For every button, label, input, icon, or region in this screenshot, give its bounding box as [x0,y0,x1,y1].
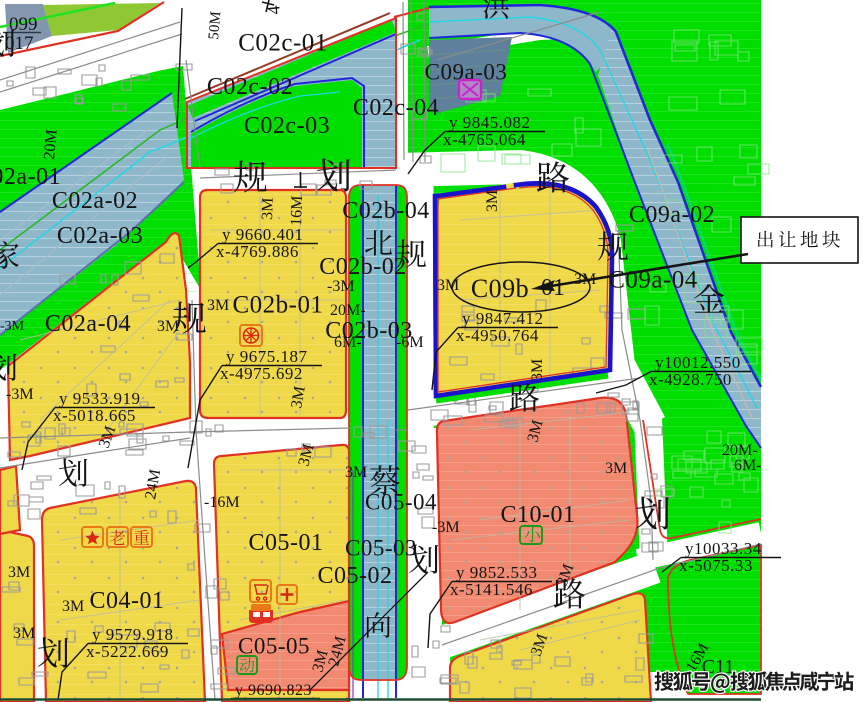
svg-text:3M: 3M [345,464,367,481]
svg-text:50M: 50M [206,11,224,41]
svg-text:C02c-01: C02c-01 [238,29,328,56]
svg-text:x-5141.546: x-5141.546 [450,580,533,599]
svg-text:x-4950.764: x-4950.764 [456,326,539,345]
svg-text:-6M: -6M [396,334,424,351]
svg-text:C02a-04: C02a-04 [45,311,131,337]
svg-text:20M: 20M [41,129,61,161]
svg-text:C05-03: C05-03 [345,536,417,561]
svg-text:C09a-02: C09a-02 [629,202,715,228]
svg-text:x-4975.692: x-4975.692 [220,364,303,383]
svg-text:017: 017 [5,33,34,54]
svg-text:C02c-02: C02c-02 [207,74,293,100]
svg-text:3M: 3M [207,297,229,314]
svg-text:-3M: -3M [432,519,460,536]
svg-text:y 9690.823: y 9690.823 [235,682,312,699]
svg-text:-3M: -3M [6,386,34,403]
svg-text:3M: 3M [8,564,30,581]
svg-text:-3M: -3M [327,278,355,295]
svg-text:20M-: 20M- [330,302,366,319]
svg-text:x-5075.33: x-5075.33 [679,556,753,575]
svg-text:-16M: -16M [204,494,240,511]
svg-text:C02b-04: C02b-04 [342,198,430,224]
svg-text:x-5018.665: x-5018.665 [53,406,136,425]
svg-text:C04-01: C04-01 [90,588,165,614]
svg-text:C05-05: C05-05 [238,634,310,659]
svg-text:x-5222.669: x-5222.669 [86,642,169,661]
svg-text:3M: 3M [259,197,277,220]
svg-text:C02a-01: C02a-01 [0,164,61,190]
svg-text:3M: 3M [62,598,84,615]
svg-text:6M-: 6M- [734,457,762,474]
svg-text:C02a-03: C02a-03 [57,223,143,249]
svg-text:C02a-02: C02a-02 [52,188,138,214]
svg-text:C10-01: C10-01 [501,502,576,528]
svg-text:x-4765.064: x-4765.064 [443,130,526,149]
svg-text:C05-01: C05-01 [249,530,324,556]
svg-text:C09b: C09b [471,274,529,303]
svg-text:C02c-04: C02c-04 [353,95,439,121]
svg-text:C05-02: C05-02 [318,563,393,589]
svg-text:C02b-01: C02b-01 [233,291,324,318]
svg-text:3M: 3M [484,190,501,212]
svg-text:3M: 3M [605,460,627,477]
svg-text:C02c-03: C02c-03 [244,113,330,139]
svg-text:x-4769.886: x-4769.886 [216,242,299,261]
svg-text:-3M: -3M [0,319,25,334]
svg-text:C02b-02: C02b-02 [319,254,407,280]
svg-text:6M-: 6M- [334,334,362,351]
svg-text:3M: 3M [529,359,546,381]
svg-text:16M: 16M [288,195,306,226]
svg-text:3M: 3M [157,318,179,335]
svg-text:C05-04: C05-04 [365,490,437,515]
svg-text:x-4928.750: x-4928.750 [649,370,732,389]
svg-text:3M: 3M [13,625,35,642]
